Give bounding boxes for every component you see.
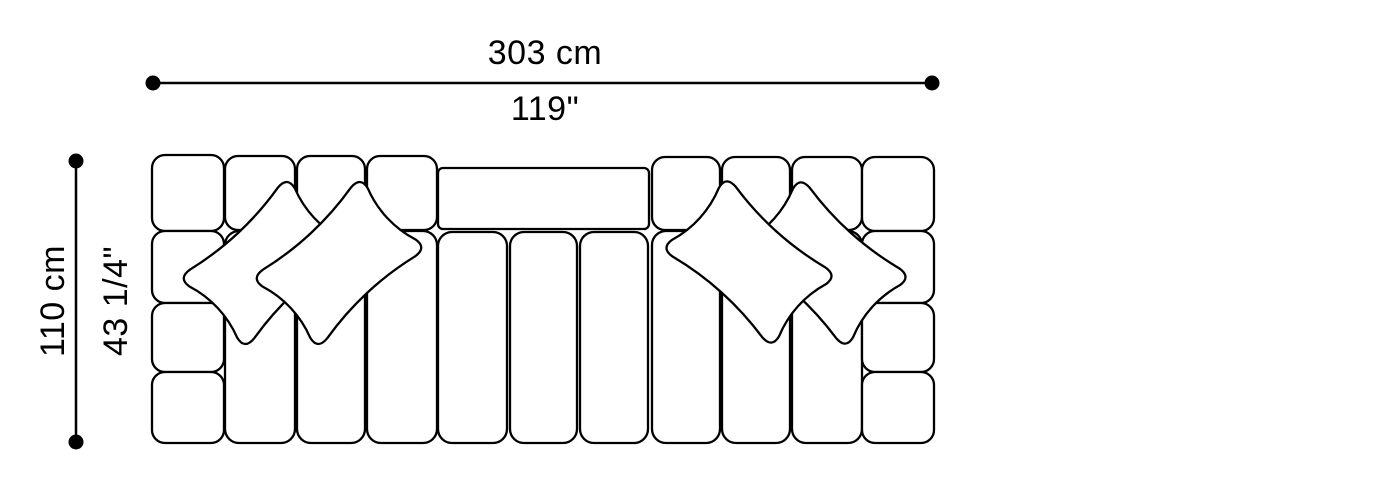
drawing-canvas: 303 cm 119" 110 cm 43 1/4" xyxy=(0,0,1400,484)
center-seat-channel-3 xyxy=(580,232,648,443)
left-armrest-cushion-1 xyxy=(152,155,224,231)
width-dimension-endpoint-left xyxy=(146,76,161,91)
sofa-plan xyxy=(152,155,934,443)
depth-dimension-endpoint-top xyxy=(69,154,84,169)
width-label-metric: 303 cm xyxy=(488,34,603,72)
right-armrest-cushion-1 xyxy=(862,157,934,231)
left-armrest-cushion-3 xyxy=(152,303,224,372)
width-dimension-endpoint-right xyxy=(925,76,940,91)
center-seat-channel-2 xyxy=(510,232,577,443)
depth-dimension: 110 cm 43 1/4" xyxy=(34,154,135,450)
right-armrest-cushion-3 xyxy=(862,303,934,372)
center-backrest-panel xyxy=(438,168,649,229)
width-label-imperial: 119" xyxy=(511,90,579,128)
right-armrest-cushion-4 xyxy=(862,372,934,443)
center-seat-channel-1 xyxy=(438,232,507,443)
sofa-technical-drawing: 303 cm 119" 110 cm 43 1/4" xyxy=(0,0,1400,484)
depth-dimension-endpoint-bottom xyxy=(69,435,84,450)
width-dimension: 303 cm 119" xyxy=(146,34,940,128)
left-armrest-cushion-4 xyxy=(152,372,224,443)
depth-label-metric: 110 cm xyxy=(34,245,72,357)
depth-label-imperial: 43 1/4" xyxy=(97,246,135,356)
